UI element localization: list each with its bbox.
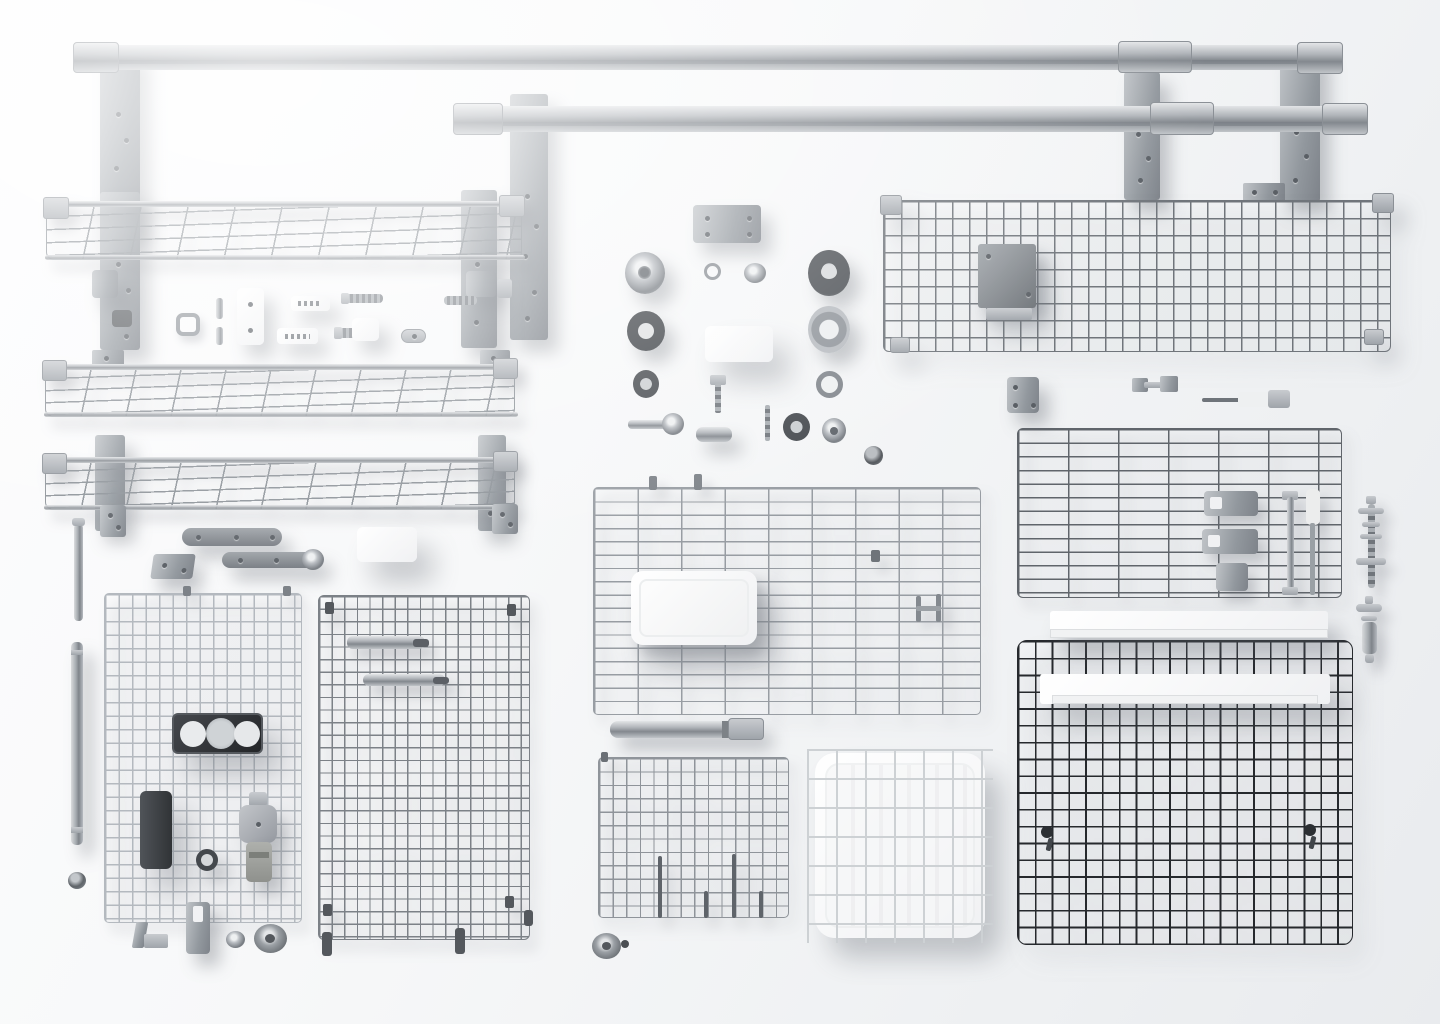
dark-cover-bar [140, 791, 172, 869]
strap-band [249, 852, 269, 858]
small-screw [226, 931, 245, 948]
pin-shaft [765, 405, 770, 441]
screw-hole [705, 216, 710, 221]
ring-knob [254, 924, 287, 953]
mount-clip [601, 752, 608, 762]
screw-hole [747, 232, 752, 237]
screw-hole [124, 138, 129, 143]
screw-hole [238, 558, 243, 563]
shelf-clip [1202, 529, 1258, 554]
screw-hole [525, 194, 530, 199]
screw-hole [256, 822, 261, 827]
screw-hole [1304, 154, 1309, 159]
corner-plate [100, 505, 126, 537]
tiny-knob [864, 446, 883, 465]
shelf-corner-cap-left [43, 197, 69, 219]
tray-socket [206, 718, 236, 749]
screw-hole [508, 522, 513, 527]
rail-end-cap-left [453, 103, 503, 135]
shelf-front-edge [1052, 695, 1318, 704]
screw-hole [500, 512, 505, 517]
tray-inner [639, 579, 749, 637]
white-cover-box [357, 527, 417, 562]
machine-screw [341, 294, 383, 303]
rail-end-cap-right [1297, 42, 1343, 74]
screw-hole [1138, 178, 1143, 183]
flat-bar-strap [182, 528, 282, 546]
tool-cap [1268, 390, 1290, 408]
shelf-clip [1204, 491, 1258, 516]
rod-hook [72, 518, 85, 526]
square-ring-clip [176, 313, 200, 336]
shelf-front-rod [44, 457, 518, 463]
shelf-front-rod [44, 364, 518, 370]
connector-block [1160, 376, 1178, 392]
l-clip [130, 922, 168, 952]
rail-end-cap-right [1322, 103, 1368, 135]
tiny-dot-screw [621, 940, 629, 948]
bar-fitting [728, 718, 764, 740]
white-grid-basket [815, 753, 985, 938]
tool-body-white [1238, 392, 1272, 407]
small-knob [822, 418, 846, 443]
hex-nut [68, 872, 86, 889]
hardware-flatlay-photo [0, 0, 1440, 1024]
hinge-clamp-left [92, 270, 118, 298]
corner-plate [492, 504, 518, 534]
screw-head [341, 293, 349, 304]
peg-hook [363, 674, 445, 686]
screw-hole [532, 290, 537, 295]
shelf-front-rod [45, 201, 525, 207]
bolt-tip [1365, 654, 1374, 663]
screw-hole [1293, 178, 1298, 183]
channel-clamp [186, 902, 210, 954]
shelf-corner-cap-left [42, 453, 67, 474]
clip-notch [1210, 497, 1222, 509]
grommet [783, 413, 810, 441]
rod-flange [1282, 587, 1298, 595]
dark-parts-tray [172, 713, 263, 754]
divider-pin [658, 856, 662, 918]
double-hook [914, 594, 944, 624]
divider-pin [704, 891, 708, 918]
dowel-pin [216, 298, 223, 319]
anchor-fin [1358, 508, 1384, 514]
clamp-slot [193, 906, 203, 922]
anchor-fin [1362, 522, 1380, 527]
hanger-rod-short [74, 524, 83, 621]
shelf-back-rod [44, 412, 518, 417]
screw-hole [126, 288, 131, 293]
bolt-disc [1361, 616, 1377, 621]
knob-center [638, 266, 651, 279]
support-rod [1282, 491, 1298, 595]
molded-marking [285, 334, 310, 339]
hook-crossbar [916, 606, 941, 611]
wall-rail-lower [455, 106, 1368, 132]
screw-hole [1252, 190, 1257, 195]
gear-center [821, 265, 837, 279]
gear-knob [808, 250, 850, 296]
round-knob [625, 252, 665, 294]
dark-ring [627, 311, 665, 351]
screw-hole [412, 334, 417, 339]
threaded-pin [761, 405, 773, 441]
white-cap-fitting [277, 328, 318, 344]
panel-hook [183, 586, 191, 596]
screw-hole [116, 525, 121, 530]
screw-hole [1031, 403, 1036, 408]
screw-hole [248, 328, 253, 333]
knob-center [265, 934, 275, 943]
clip-notch [1208, 535, 1220, 547]
white-tray [631, 571, 757, 645]
mount-bracket-right-a [1124, 72, 1160, 200]
anchor-fin [1360, 534, 1382, 539]
junction-box-flap [986, 308, 1032, 320]
mount-clip [507, 604, 516, 616]
large-washer [808, 306, 850, 353]
divider-pin [732, 854, 736, 918]
rod-band [71, 650, 83, 655]
anchor-fin [1356, 558, 1386, 565]
white-connector-body [237, 288, 264, 345]
pin-ball [662, 413, 684, 435]
angle-bracket [150, 554, 196, 579]
panel-peg [455, 928, 465, 954]
screw-hole [270, 535, 275, 540]
white-cap-fitting [291, 296, 330, 311]
white-shelf-board [1040, 674, 1330, 704]
mesh-panel-pins [598, 757, 789, 918]
pointer-pin-tool [1202, 390, 1290, 408]
hinge-clamp-right [466, 271, 496, 297]
knob-center [830, 427, 838, 435]
grommet [633, 370, 659, 398]
screw-hole [1013, 385, 1018, 390]
screw-hole [108, 513, 113, 518]
ring-knob [592, 933, 621, 959]
wire-shelf-basket-2 [45, 365, 515, 417]
oval-link [401, 329, 426, 343]
knob-center [602, 942, 611, 950]
screw-hole [1146, 156, 1151, 161]
screw-hole [234, 535, 239, 540]
screw-hole [116, 112, 121, 117]
screw-hole [474, 320, 479, 325]
tool-needle [1202, 398, 1242, 402]
panel-peg [322, 932, 332, 956]
mount-clip [325, 602, 334, 614]
shelf-back-rod [45, 255, 525, 260]
white-shelf-board [1050, 611, 1328, 638]
thin-rod [1310, 523, 1315, 595]
screw-head [334, 327, 342, 339]
wire-rack-right [1017, 428, 1342, 598]
shelf-corner-cap-right [493, 358, 518, 379]
wire-cage-basket [883, 200, 1391, 352]
screw-hole [986, 254, 991, 259]
cage-corner-cap [1364, 329, 1384, 345]
bolt-disc [1356, 604, 1382, 612]
latch-knob [112, 310, 132, 327]
screw-hole [1026, 292, 1031, 297]
small-ring [704, 263, 721, 280]
screw-hole [705, 232, 710, 237]
machine-screw [444, 296, 477, 305]
screw-hole [162, 563, 168, 568]
panel-peg-dot [1041, 826, 1053, 838]
cage-corner-cap [1372, 193, 1394, 213]
hinge-roller [302, 549, 324, 570]
screw-shaft [715, 383, 721, 413]
white-cover-box [705, 326, 773, 362]
anchor-screw [1356, 502, 1386, 588]
flat-ring [816, 371, 843, 398]
screw-hole [1013, 403, 1018, 408]
wire-rack-wide [593, 487, 981, 715]
wire-shelf-basket-1 [46, 202, 522, 260]
towel-bar [610, 721, 764, 738]
fitting-small [497, 279, 512, 298]
tray-socket [234, 721, 260, 747]
basket-wire-grid [807, 749, 993, 943]
clip-horizontal [144, 934, 168, 948]
screw-hole [124, 334, 129, 339]
anchor-bolt [1354, 596, 1384, 664]
screw-hole [525, 316, 530, 321]
bolt-barrel [1362, 622, 1377, 654]
tray-socket [180, 721, 206, 747]
shelf-corner-cap-right [493, 451, 518, 472]
rail-end-cap-left [73, 42, 119, 73]
panel-peg-dot [1304, 824, 1316, 836]
buckle-body [239, 805, 277, 843]
white-peg [1306, 489, 1320, 525]
dowel-pin [216, 327, 223, 345]
cover-plate [693, 205, 761, 243]
rail-connector-sleeve [1118, 41, 1192, 73]
screw-vertical [710, 375, 726, 413]
mesh-panel-small [104, 593, 302, 923]
rail-connector-sleeve [1150, 102, 1214, 135]
screw-hole [114, 166, 119, 171]
panel-peg [524, 910, 533, 926]
mesh-panel-pegboard [318, 595, 530, 940]
screw-hole [747, 216, 752, 221]
screw-hole [196, 535, 201, 540]
rack-hook [649, 476, 657, 490]
screw-hole [475, 262, 480, 267]
hinge-bar [222, 552, 322, 568]
screw-hole [1273, 190, 1278, 195]
rod-band [71, 827, 83, 833]
panel-hook [283, 586, 291, 596]
junction-box [978, 244, 1036, 308]
peg-tip [413, 639, 429, 647]
buckle-strap [246, 842, 272, 882]
wire-shelf-basket-3 [45, 458, 515, 510]
screw-hole [1136, 132, 1141, 137]
shelf-corner-cap-right [499, 195, 525, 217]
hanger-rod-long [71, 642, 83, 845]
mount-clip [505, 896, 514, 908]
screw-hole [104, 356, 109, 361]
shelf-corner-cap-left [42, 360, 67, 381]
cage-corner-cap [890, 337, 910, 353]
small-knob [744, 263, 766, 283]
screw-hole [116, 262, 121, 267]
wall-rail-upper [75, 45, 1343, 70]
u-clip [696, 427, 732, 442]
peg-tip [433, 677, 449, 684]
grommet [196, 849, 218, 871]
anchor-tip [1366, 496, 1376, 504]
wall-clip [1007, 377, 1039, 413]
screw-hole [274, 558, 279, 563]
divider-pin [759, 891, 763, 918]
bolt-top [1365, 596, 1373, 604]
screw-hole [181, 568, 187, 573]
anchor-shaft [1368, 504, 1375, 588]
mount-clip [323, 904, 332, 916]
peg-hook [347, 636, 425, 649]
rod-shaft [1287, 497, 1294, 589]
white-prong-fitting [352, 318, 379, 341]
double-connector [1132, 376, 1178, 393]
shelf-clip [1216, 563, 1248, 591]
screw-hole [248, 302, 253, 307]
tiny-screw [871, 550, 880, 562]
ball-handle-pin [628, 413, 680, 435]
shelf-front-edge [1050, 629, 1328, 638]
screw-hole [534, 224, 539, 229]
molded-marking [298, 301, 322, 306]
rail-groove [455, 122, 1368, 126]
rack-hook [694, 474, 702, 490]
cage-corner-cap [880, 195, 902, 215]
